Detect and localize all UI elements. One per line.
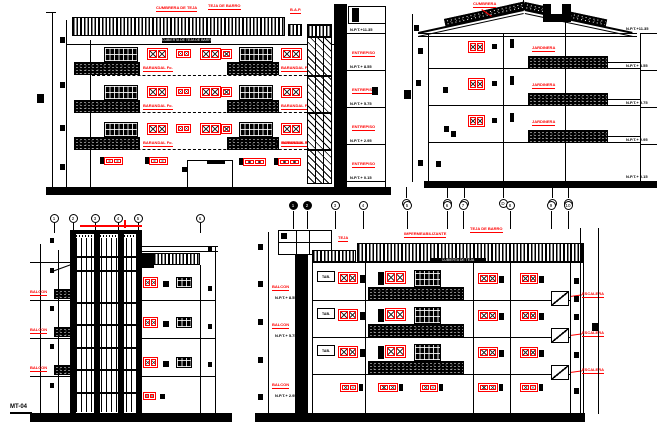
- window: [478, 310, 498, 321]
- balcony-railing: [368, 324, 464, 337]
- dimension-marker: [574, 352, 579, 358]
- grid-bubble: 8: [506, 201, 515, 210]
- floor-line: [312, 300, 570, 301]
- window-pane: [396, 347, 404, 356]
- stair-label: ESCALERA: [582, 368, 604, 374]
- window-pane: [349, 311, 357, 319]
- grid-line: [551, 211, 552, 229]
- level-label: N.P.T.+ 8.55: [275, 296, 297, 300]
- window-frame: [399, 384, 403, 391]
- wall-fixture: [499, 276, 504, 283]
- balcony-door: [414, 307, 441, 324]
- window-frame: [378, 309, 384, 322]
- grid-bubble: 2: [303, 201, 312, 210]
- wall-line: [580, 228, 581, 413]
- grid-bubble: 3: [331, 201, 340, 210]
- grid-line: [510, 211, 511, 229]
- window-pane: [396, 310, 404, 319]
- window-pane: [530, 385, 537, 390]
- window-pane: [480, 349, 488, 356]
- window-pane: [522, 385, 529, 390]
- dimension-marker: [574, 278, 579, 284]
- window-frame: [539, 384, 543, 391]
- grid-line: [568, 211, 569, 229]
- grid-bubble: 5: [403, 201, 412, 210]
- window-frame: [378, 272, 384, 285]
- level-annotation: BALCON: [272, 383, 289, 389]
- window-pane: [522, 349, 529, 356]
- window: [420, 383, 438, 392]
- grid-line: [307, 211, 308, 229]
- stair-window: [551, 291, 569, 306]
- window-pane: [380, 385, 388, 390]
- room-label-box: TAB.: [317, 308, 335, 319]
- roof-access-line: [296, 230, 297, 255]
- dimension-marker: [258, 244, 263, 250]
- dimension-marker: [258, 357, 263, 363]
- window-pane: [342, 385, 349, 390]
- window-pane: [480, 275, 488, 282]
- grid-bubble: 7: [459, 201, 468, 210]
- window: [338, 346, 358, 358]
- grid-bubble: 6: [443, 201, 452, 210]
- window-frame: [359, 384, 363, 391]
- grid-line: [293, 211, 294, 229]
- dimension-line: [268, 232, 269, 413]
- window-frame: [499, 384, 503, 391]
- window: [385, 345, 406, 358]
- window: [338, 309, 358, 321]
- dimension-line: [598, 228, 599, 414]
- grid-line: [407, 211, 408, 229]
- stair-window: [551, 328, 569, 343]
- window-pane: [340, 311, 348, 319]
- wall-fixture: [360, 349, 365, 357]
- dimension-marker: [258, 319, 263, 325]
- wall-fixture: [499, 313, 504, 320]
- dimension-marker: [258, 281, 263, 287]
- wall-line: [570, 243, 571, 413]
- dimension-marker: [574, 388, 579, 394]
- window-frame: [378, 346, 384, 359]
- balcony-door: [414, 270, 441, 287]
- wall-fixture: [539, 276, 544, 283]
- balcony-railing: [368, 287, 464, 300]
- ground-line: [255, 413, 585, 422]
- dimension-marker: [592, 323, 599, 331]
- window-frame: [439, 384, 443, 391]
- dimension-marker: [574, 296, 579, 302]
- wall-fixture: [360, 275, 365, 283]
- window: [478, 273, 498, 284]
- window-pane: [530, 349, 537, 356]
- window-pane: [489, 385, 497, 390]
- grid-line: [335, 211, 336, 229]
- window-pane: [430, 385, 437, 390]
- window: [385, 271, 406, 284]
- window-pane: [340, 348, 348, 356]
- window: [478, 383, 498, 392]
- window-pane: [489, 312, 497, 319]
- annotation-label: TEJA: [338, 236, 348, 242]
- window-pane: [522, 275, 529, 282]
- window-pane: [340, 274, 348, 282]
- window-pane: [349, 348, 357, 356]
- stair-label: ESCALERA: [582, 292, 604, 298]
- grid-line: [463, 211, 464, 229]
- floor-line: [312, 374, 570, 375]
- roof-access-marker: [281, 233, 287, 239]
- window-pane: [387, 273, 395, 282]
- window-pane: [387, 310, 395, 319]
- grid-bubble: 1: [289, 201, 298, 210]
- window-pane: [389, 385, 397, 390]
- drawing-sheet: CUBIERTA DE TEJA DE BARROCUMBRERA DE TEJ…: [0, 0, 663, 427]
- annotation-label: IMPERMEABILIZANTE: [404, 232, 446, 238]
- wall-fixture: [499, 350, 504, 357]
- window: [385, 308, 406, 321]
- stair-label: ESCALERA: [582, 331, 604, 337]
- window: [340, 383, 358, 392]
- roof-hatch-band: [312, 250, 356, 262]
- wall-line: [583, 243, 584, 413]
- room-label-box: TAB.: [317, 345, 335, 356]
- window-pane: [396, 273, 404, 282]
- rear-elevation-view: 12345678910BALCONBALCONBALCONN.P.T.+ 8.5…: [0, 0, 663, 427]
- wall-fixture: [539, 350, 544, 357]
- window-pane: [489, 349, 497, 356]
- grid-bubble: 9: [547, 201, 556, 210]
- core-wall: [295, 255, 308, 413]
- window-pane: [349, 274, 357, 282]
- window: [520, 347, 538, 358]
- grid-bubble: 4: [359, 201, 368, 210]
- window-pane: [530, 275, 537, 282]
- grid-line: [363, 211, 364, 229]
- room-label-box: TAB.: [317, 271, 335, 282]
- balcony-door: [414, 344, 441, 361]
- wall-line: [312, 250, 313, 413]
- window: [338, 272, 358, 284]
- window-pane: [530, 312, 537, 319]
- window: [520, 273, 538, 284]
- level-annotation: BALCON: [272, 323, 289, 329]
- grid-bubble: 10: [564, 201, 573, 210]
- window-pane: [480, 385, 488, 390]
- wall-fixture: [360, 312, 365, 320]
- level-annotation: BALCON: [272, 285, 289, 291]
- level-label: N.P.T.+ 5.75: [275, 334, 297, 338]
- window-pane: [387, 347, 395, 356]
- roof-access-line: [309, 230, 310, 255]
- wall-fixture: [539, 313, 544, 320]
- window-pane: [350, 385, 357, 390]
- floor-line: [312, 337, 570, 338]
- dimension-marker: [574, 314, 579, 320]
- window: [520, 383, 538, 392]
- balcony-railing: [368, 361, 464, 374]
- grid-line: [447, 211, 448, 229]
- annotation-label: TEJA DE BARRO: [470, 227, 503, 233]
- window: [520, 310, 538, 321]
- window-pane: [480, 312, 488, 319]
- stair-window: [551, 365, 569, 380]
- window-pane: [489, 275, 497, 282]
- dimension-marker: [258, 394, 263, 400]
- roof-access-line: [279, 242, 331, 243]
- floor-line: [312, 262, 583, 263]
- level-label: N.P.T.+ 2.95: [275, 394, 297, 398]
- window: [478, 347, 498, 358]
- window: [378, 383, 398, 392]
- window-pane: [422, 385, 429, 390]
- window-pane: [522, 312, 529, 319]
